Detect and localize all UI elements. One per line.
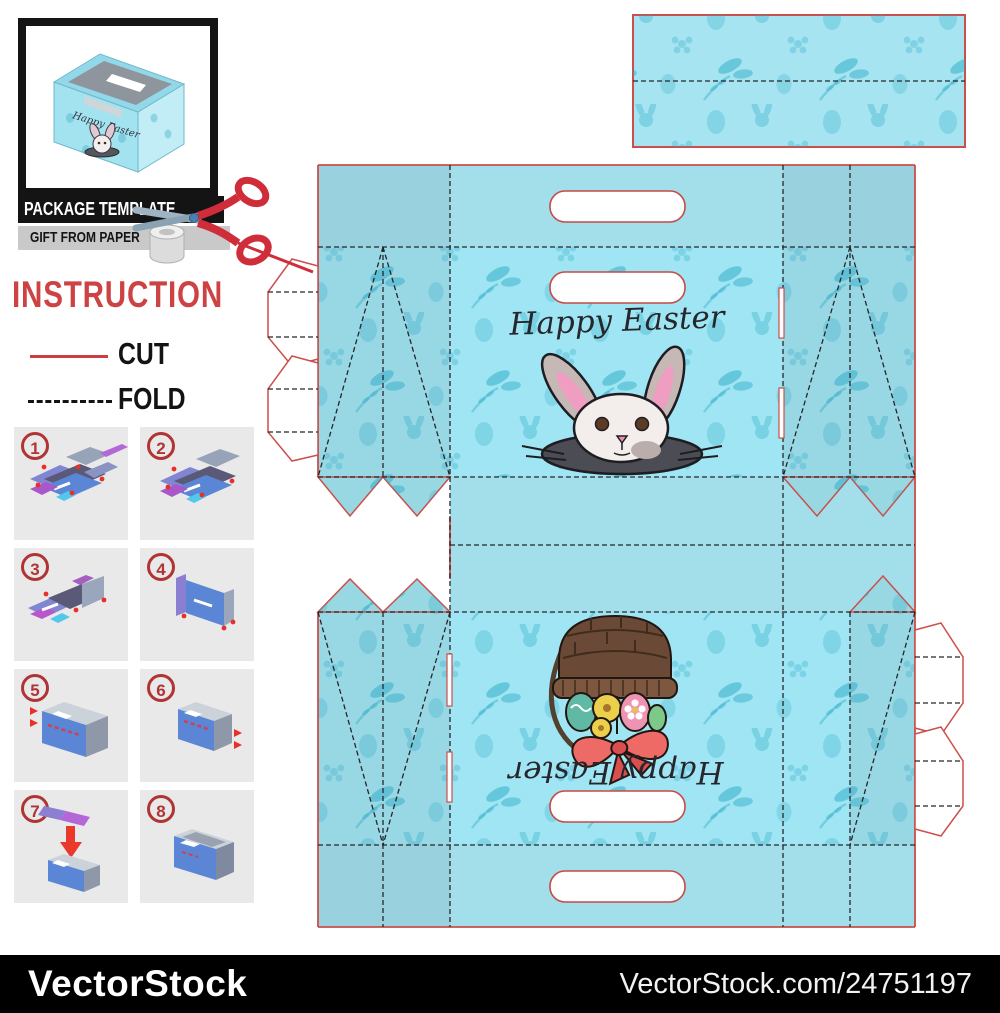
fold-legend-label: FOLD [118,381,202,417]
step-8-illustration [140,790,254,903]
watermark-bar: VectorStock VectorStock.com/24751197 [0,955,1000,1013]
step-3-illustration [14,548,128,661]
instruction-title-label: INSTRUCTION [12,274,223,316]
step-1-illustration [14,427,128,540]
scissors-icon [128,168,318,278]
step-1-cell: 1 [14,427,128,540]
front-greeting-text: Happy Easter [508,299,728,343]
step-6-illustration [140,669,254,782]
step-6-cell: 6 [140,669,254,782]
step-8-cell: 8 [140,790,254,903]
assembly-steps-grid: 1 2 3 [14,427,254,903]
banner-gift-from-paper-label: GIFT FROM PAPER [30,226,140,250]
fold-line-sample [28,400,112,403]
watermark-ref: VectorStock.com/24751197 [619,968,972,1001]
step-2-cell: 2 [140,427,254,540]
step-2-illustration [140,427,254,540]
step-7-cell: 7 [14,790,128,903]
step-4-cell: 4 [140,548,254,661]
step-5-illustration [14,669,128,782]
step-4-illustration [140,548,254,661]
step-7-illustration [14,790,128,903]
tape-roll-icon [150,225,184,263]
insert-strip [633,15,965,147]
cut-line-sample [30,355,108,358]
cut-legend-label: CUT [118,336,182,372]
instruction-title: INSTRUCTION [12,274,276,316]
step-3-cell: 3 [14,548,128,661]
back-greeting-text: Happy Easter [506,754,724,790]
step-5-cell: 5 [14,669,128,782]
watermark-brand: VectorStock [28,963,247,1005]
assembled-box-preview: Happy Easter [26,26,210,188]
